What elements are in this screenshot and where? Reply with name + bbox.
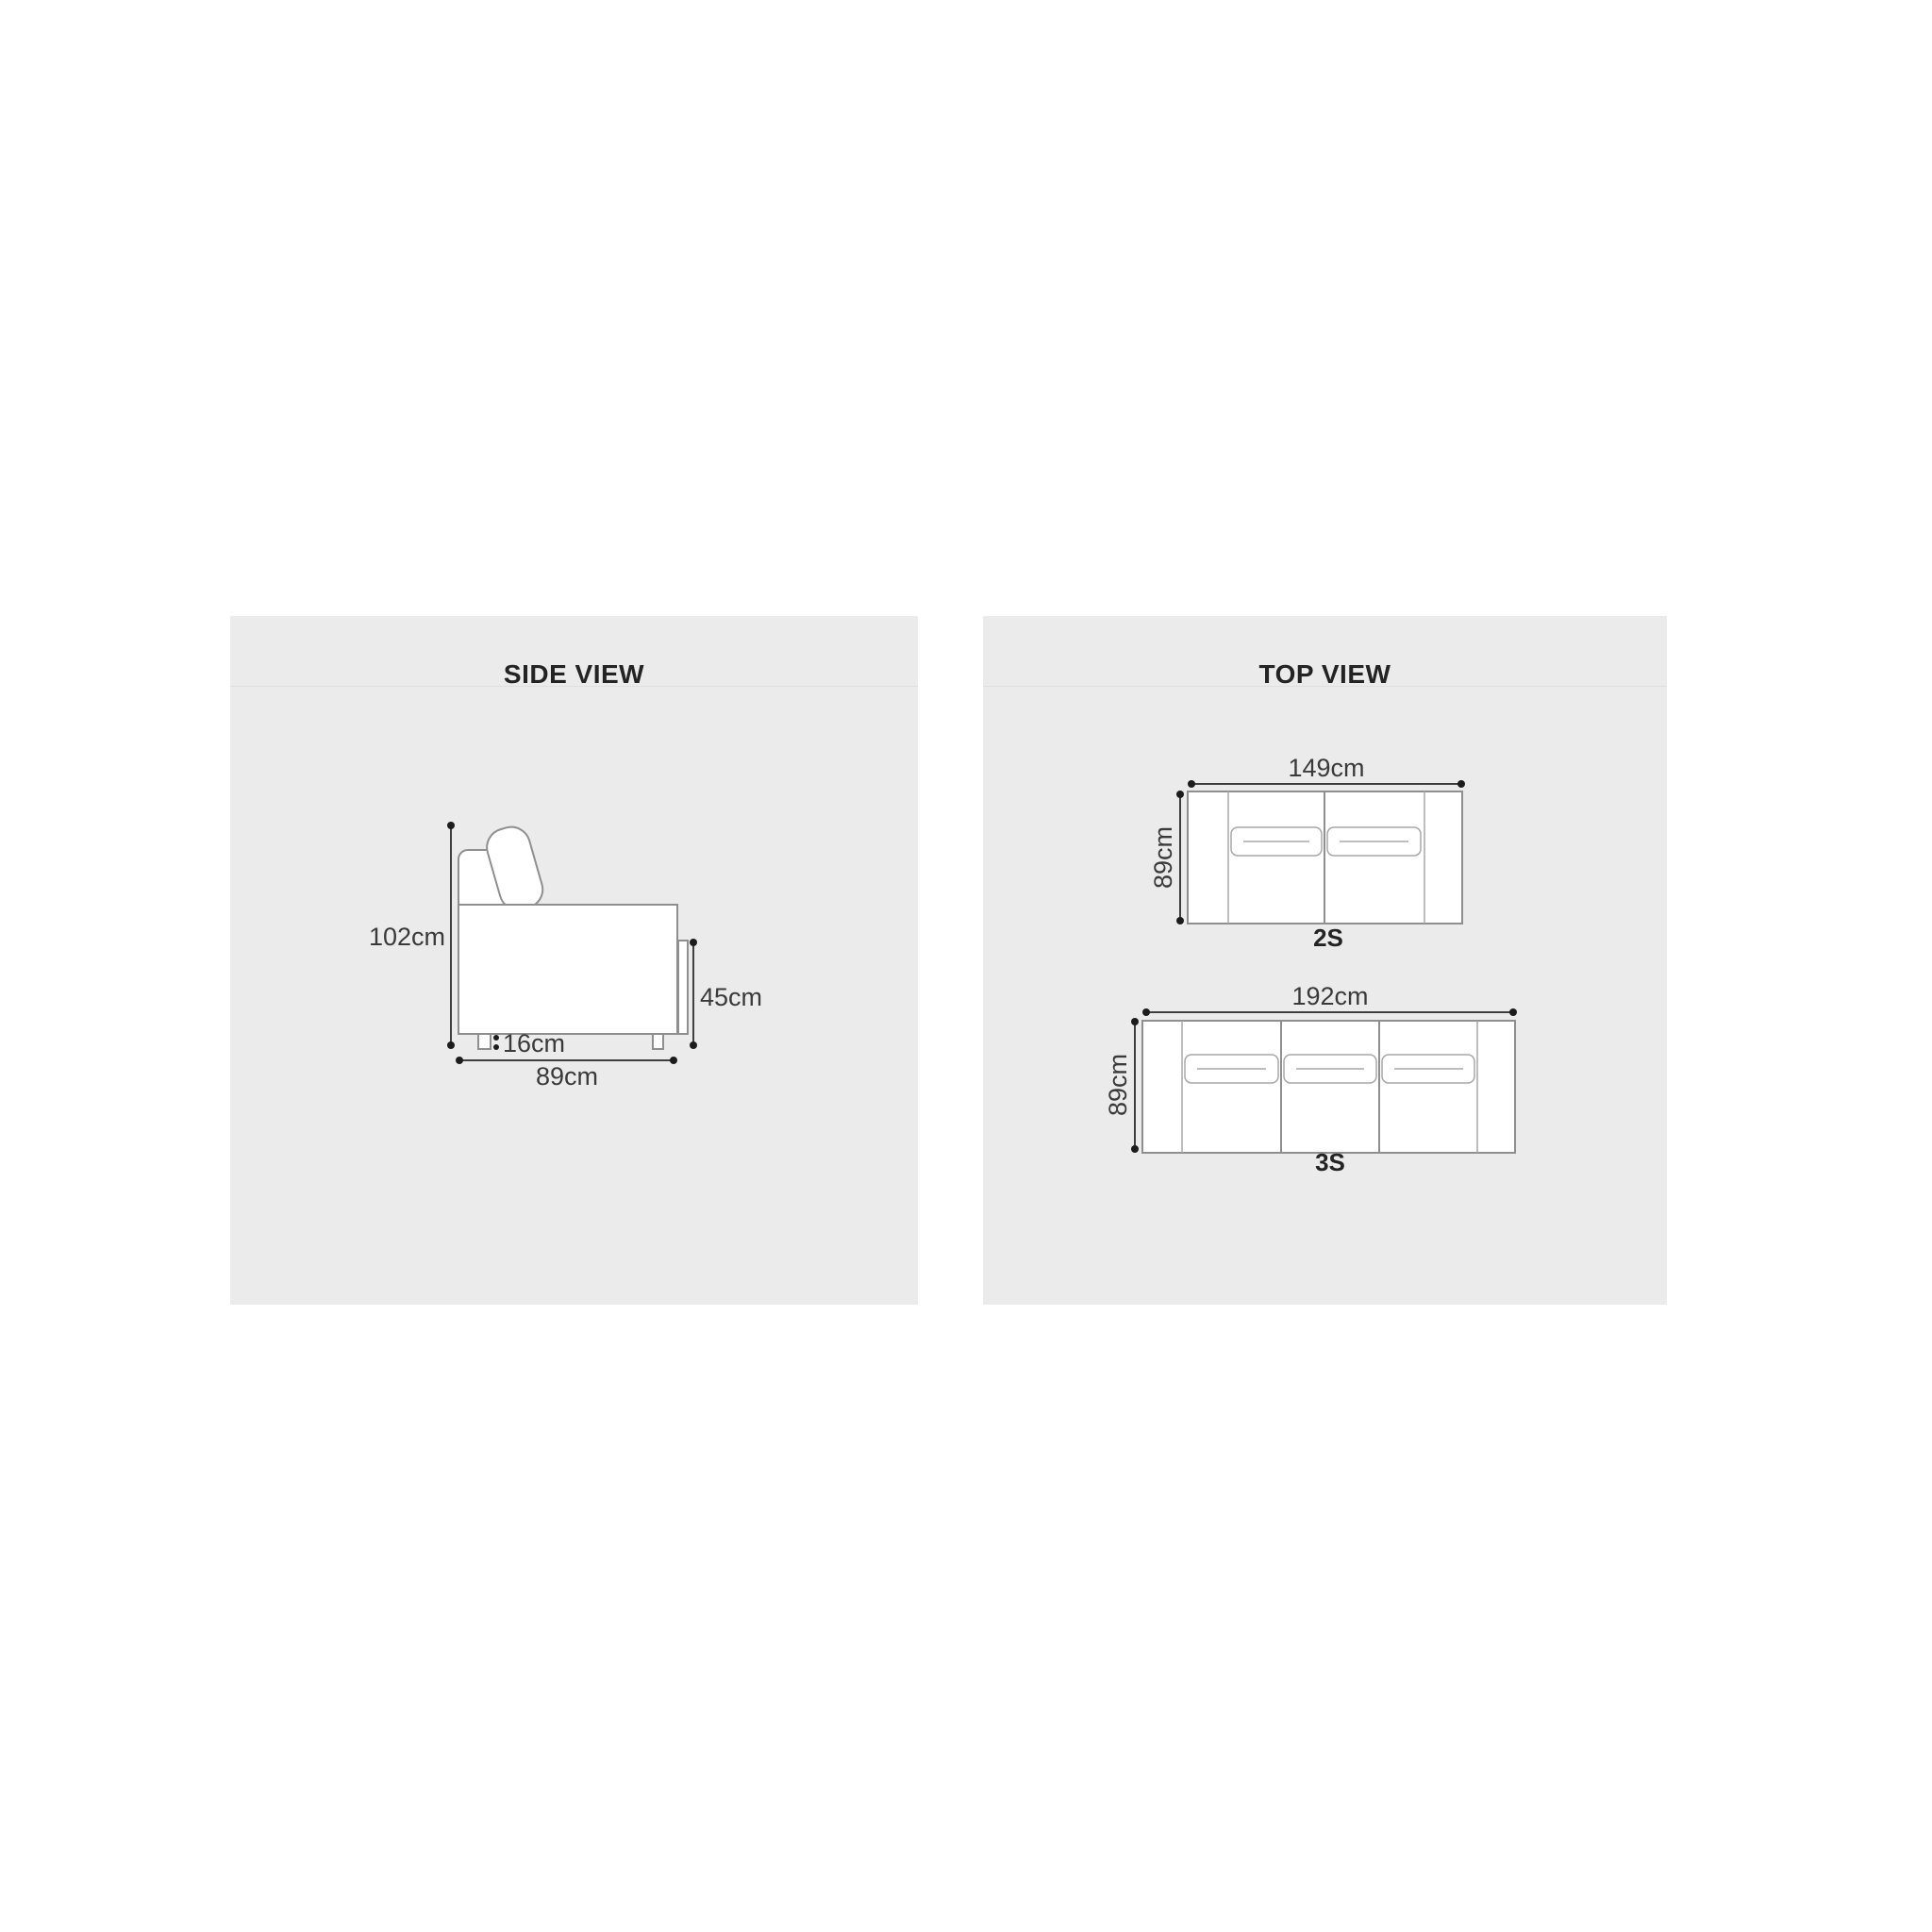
sofa-back-leg: [478, 1034, 491, 1049]
height-dimension-label: 102cm: [369, 923, 445, 951]
two-seater-label: 2S: [1313, 924, 1343, 952]
side-view-panel: SIDE VIEW 102cm 45cm: [230, 616, 918, 1305]
side-view-diagram: 102cm 45cm 16cm 89cm: [230, 616, 918, 1305]
two-seater-depth-dot-bottom: [1176, 917, 1184, 924]
three-seater-width-dot-left: [1142, 1008, 1150, 1016]
depth-dimension-dot-right: [670, 1057, 677, 1064]
three-seater-width-label: 192cm: [1291, 982, 1368, 1010]
top-view-panel: TOP VIEW 149cm 89cm 2S: [983, 616, 1667, 1305]
two-seater-depth-dot-top: [1176, 791, 1184, 798]
sofa-body: [458, 905, 677, 1034]
sofa-front-leg: [653, 1034, 663, 1049]
seat-height-dimension-dot-bottom: [690, 1041, 697, 1049]
product-dimensions-image: SIDE VIEW 102cm 45cm: [0, 0, 1932, 1932]
top-view-diagram: 149cm 89cm 2S 192cm: [983, 616, 1667, 1305]
three-seater-depth-label: 89cm: [1104, 1054, 1132, 1116]
depth-dimension-label: 89cm: [536, 1062, 598, 1091]
height-dimension-dot-bottom: [447, 1041, 455, 1049]
seat-height-dimension-label: 45cm: [700, 983, 762, 1011]
leg-height-dimension-dot-top: [493, 1035, 499, 1041]
leg-height-dimension-label: 16cm: [503, 1029, 565, 1058]
depth-dimension-dot-left: [456, 1057, 463, 1064]
leg-height-dimension-dot-bottom: [493, 1044, 499, 1050]
height-dimension-dot-top: [447, 822, 455, 829]
two-seater-width-label: 149cm: [1288, 754, 1364, 782]
three-seater-width-dot-right: [1509, 1008, 1517, 1016]
three-seater-depth-dot-top: [1131, 1018, 1139, 1025]
sofa-seat-front-edge: [678, 941, 688, 1034]
seat-height-dimension-dot-top: [690, 939, 697, 946]
two-seater-depth-label: 89cm: [1149, 826, 1177, 889]
three-seater-depth-dot-bottom: [1131, 1145, 1139, 1153]
three-seater-body: [1142, 1021, 1515, 1153]
two-seater-width-dot-right: [1457, 780, 1465, 788]
two-seater-width-dot-left: [1188, 780, 1195, 788]
three-seater-label: 3S: [1315, 1148, 1345, 1176]
